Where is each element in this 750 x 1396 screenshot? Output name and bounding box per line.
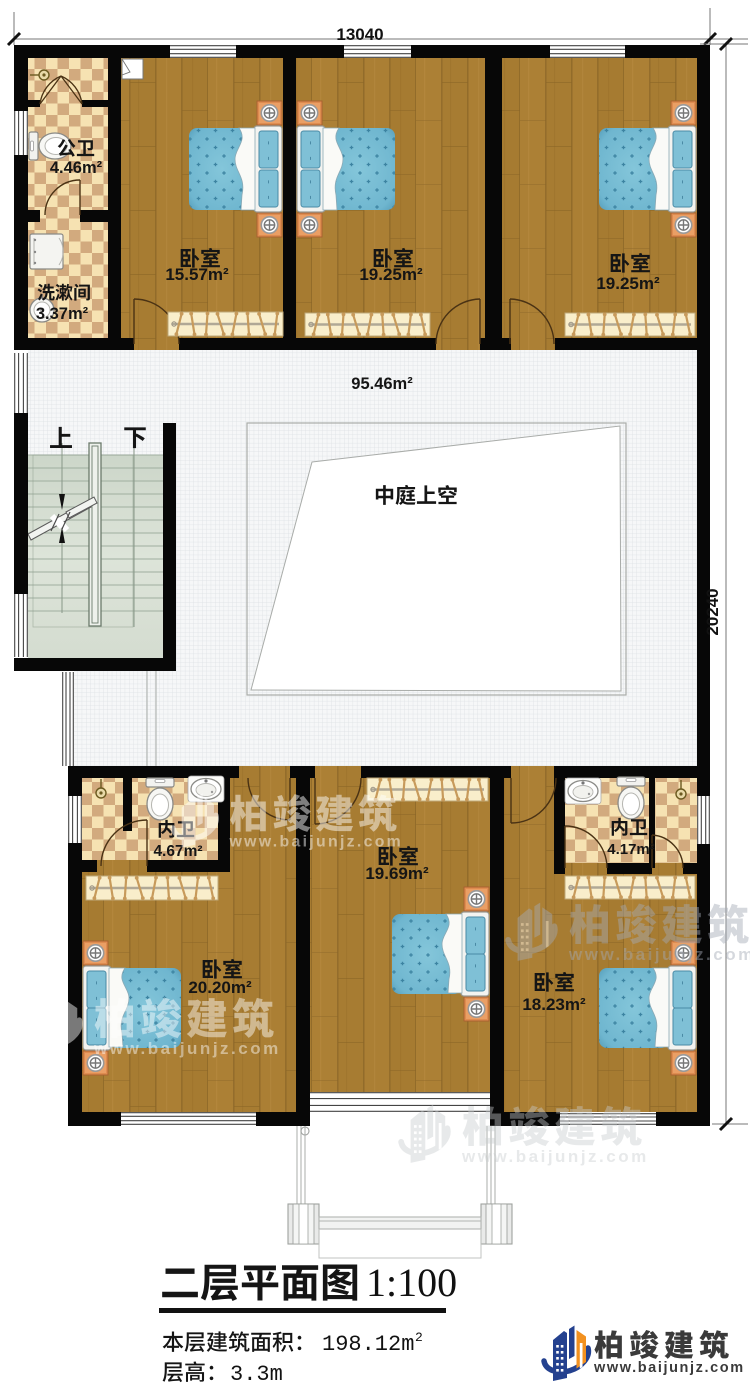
svg-text:20240: 20240 [703,588,722,635]
svg-text:www.baijunjz.com: www.baijunjz.com [229,834,404,851]
svg-text:3.37m²: 3.37m² [36,305,89,323]
svg-text:www.baijunjz.com: www.baijunjz.com [568,945,750,964]
svg-text:4.46m²: 4.46m² [50,159,103,177]
svg-text:18.23m²: 18.23m² [522,995,586,1014]
svg-text:4.17m²: 4.17m² [607,841,655,858]
svg-text:1:100: 1:100 [366,1260,457,1305]
svg-text:www.baijunjz.com: www.baijunjz.com [461,1147,649,1166]
svg-text:15.57m²: 15.57m² [165,265,229,284]
svg-text:2: 2 [415,1330,423,1345]
svg-text:4.67m²: 4.67m² [153,843,202,860]
svg-text:13040: 13040 [336,25,383,44]
svg-text:3.3m: 3.3m [230,1362,283,1387]
svg-text:19.25m²: 19.25m² [596,274,660,293]
svg-text:19.25m²: 19.25m² [359,265,423,284]
svg-text:19.69m²: 19.69m² [365,864,429,883]
svg-text:20.20m²: 20.20m² [188,978,252,997]
svg-text:www.baijunjz.com: www.baijunjz.com [593,1360,745,1376]
svg-text:95.46m²: 95.46m² [351,375,413,393]
svg-text:198.12m: 198.12m [322,1332,414,1357]
svg-text:www.baijunjz.com: www.baijunjz.com [93,1039,281,1058]
